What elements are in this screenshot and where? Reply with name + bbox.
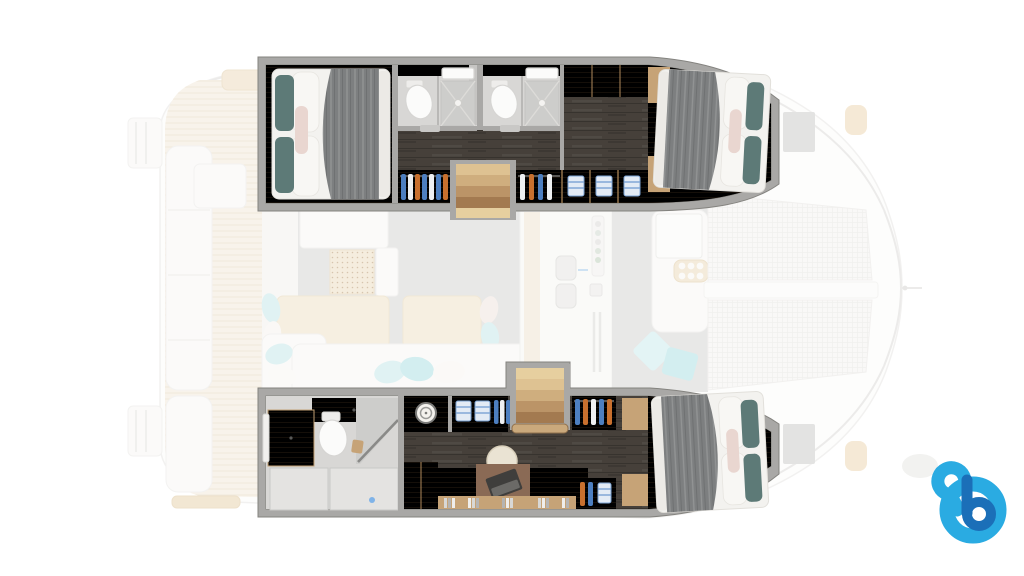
bed-foot-roll — [378, 71, 389, 197]
bathroom-divider — [477, 65, 483, 130]
speaker-panel-dots — [330, 250, 374, 294]
bow-locker-starboard — [845, 105, 867, 135]
vanity-edge — [263, 414, 269, 462]
vanity-basin — [442, 68, 474, 79]
stair-tread-3 — [516, 401, 564, 412]
bathroom-door — [420, 125, 440, 132]
bathroom-wall — [398, 392, 404, 512]
office-locker — [576, 478, 616, 509]
starboard-aft-cabin — [266, 65, 394, 203]
stair-tread-2 — [456, 175, 510, 186]
bathroom-door — [500, 125, 520, 132]
stair-tread-2 — [516, 390, 564, 401]
bed-pillow-teal — [742, 136, 761, 185]
bow-locker-port — [845, 441, 867, 471]
shower-drain — [455, 100, 462, 107]
hanging-clothes — [401, 174, 448, 200]
soap-dish — [369, 497, 375, 503]
forward-cockpit — [612, 198, 708, 392]
port-stairs — [510, 364, 570, 433]
aft-bench-side-2 — [166, 396, 212, 492]
bed-pillow-teal — [745, 82, 764, 131]
starboard-wardrobe-left — [398, 170, 452, 203]
starboard-wardrobe-right — [516, 170, 648, 203]
galley-sink-2 — [556, 284, 576, 308]
port-wardrobe-right — [572, 396, 616, 430]
bed-pillow-teal — [275, 75, 294, 131]
hanging-clothes — [494, 400, 511, 424]
floorplan-canvas: Catamaran yacht floor plan — lower deck … — [0, 0, 1024, 576]
floorplan-svg: Catamaran yacht floor plan — lower deck … — [0, 0, 1024, 576]
aft-step-plank — [172, 496, 240, 508]
nav-seat — [376, 248, 398, 296]
swim-platform-starboard — [128, 118, 162, 168]
aft-table — [194, 164, 246, 208]
galley-counter-wood — [524, 212, 540, 380]
shower-drain — [539, 100, 546, 107]
shower-door-panel — [270, 468, 328, 510]
starboard-stairs — [450, 160, 516, 220]
stair-landing — [516, 368, 564, 379]
cabin-shelf — [622, 398, 648, 430]
galley — [520, 198, 612, 390]
forward-table — [656, 214, 702, 258]
bed-pillow-teal — [275, 137, 294, 193]
stair-tread-1 — [516, 379, 564, 390]
deck-hatch-starboard — [783, 112, 815, 152]
cabin-divider-wall — [392, 65, 398, 203]
bed-pillow-pink — [726, 429, 740, 474]
vanity-basin — [526, 68, 558, 79]
port-aft-bathroom — [263, 392, 404, 512]
cabin-shelf — [622, 474, 648, 506]
starboard-hull — [258, 57, 779, 220]
bed-pillow-pink — [728, 109, 742, 154]
bed-pillow-pink — [295, 106, 308, 154]
stair-tread-4 — [456, 197, 510, 208]
bed-pillow-teal — [743, 453, 762, 502]
swim-platform-port — [128, 406, 162, 456]
stair-tread-4 — [516, 412, 564, 423]
galley-switch — [590, 284, 602, 296]
dining-table-right — [403, 296, 481, 348]
stair-tread-3 — [456, 186, 510, 197]
galley-sink-1 — [556, 256, 576, 280]
starboard-bathrooms — [398, 65, 560, 132]
shower-door-panel — [330, 468, 398, 510]
bow-center-walkway — [704, 282, 878, 298]
stair-handle — [512, 424, 568, 433]
starboard-forward-cabin — [648, 65, 771, 203]
shower-stool — [351, 439, 364, 453]
port-utility — [404, 396, 511, 432]
stair-landing — [456, 208, 510, 218]
stair-tread-1 — [456, 164, 510, 175]
folded-clothes — [568, 176, 640, 196]
bed-pillow-teal — [740, 399, 759, 448]
forestay-fitting — [903, 286, 908, 291]
deck-hatch-port — [783, 424, 815, 464]
